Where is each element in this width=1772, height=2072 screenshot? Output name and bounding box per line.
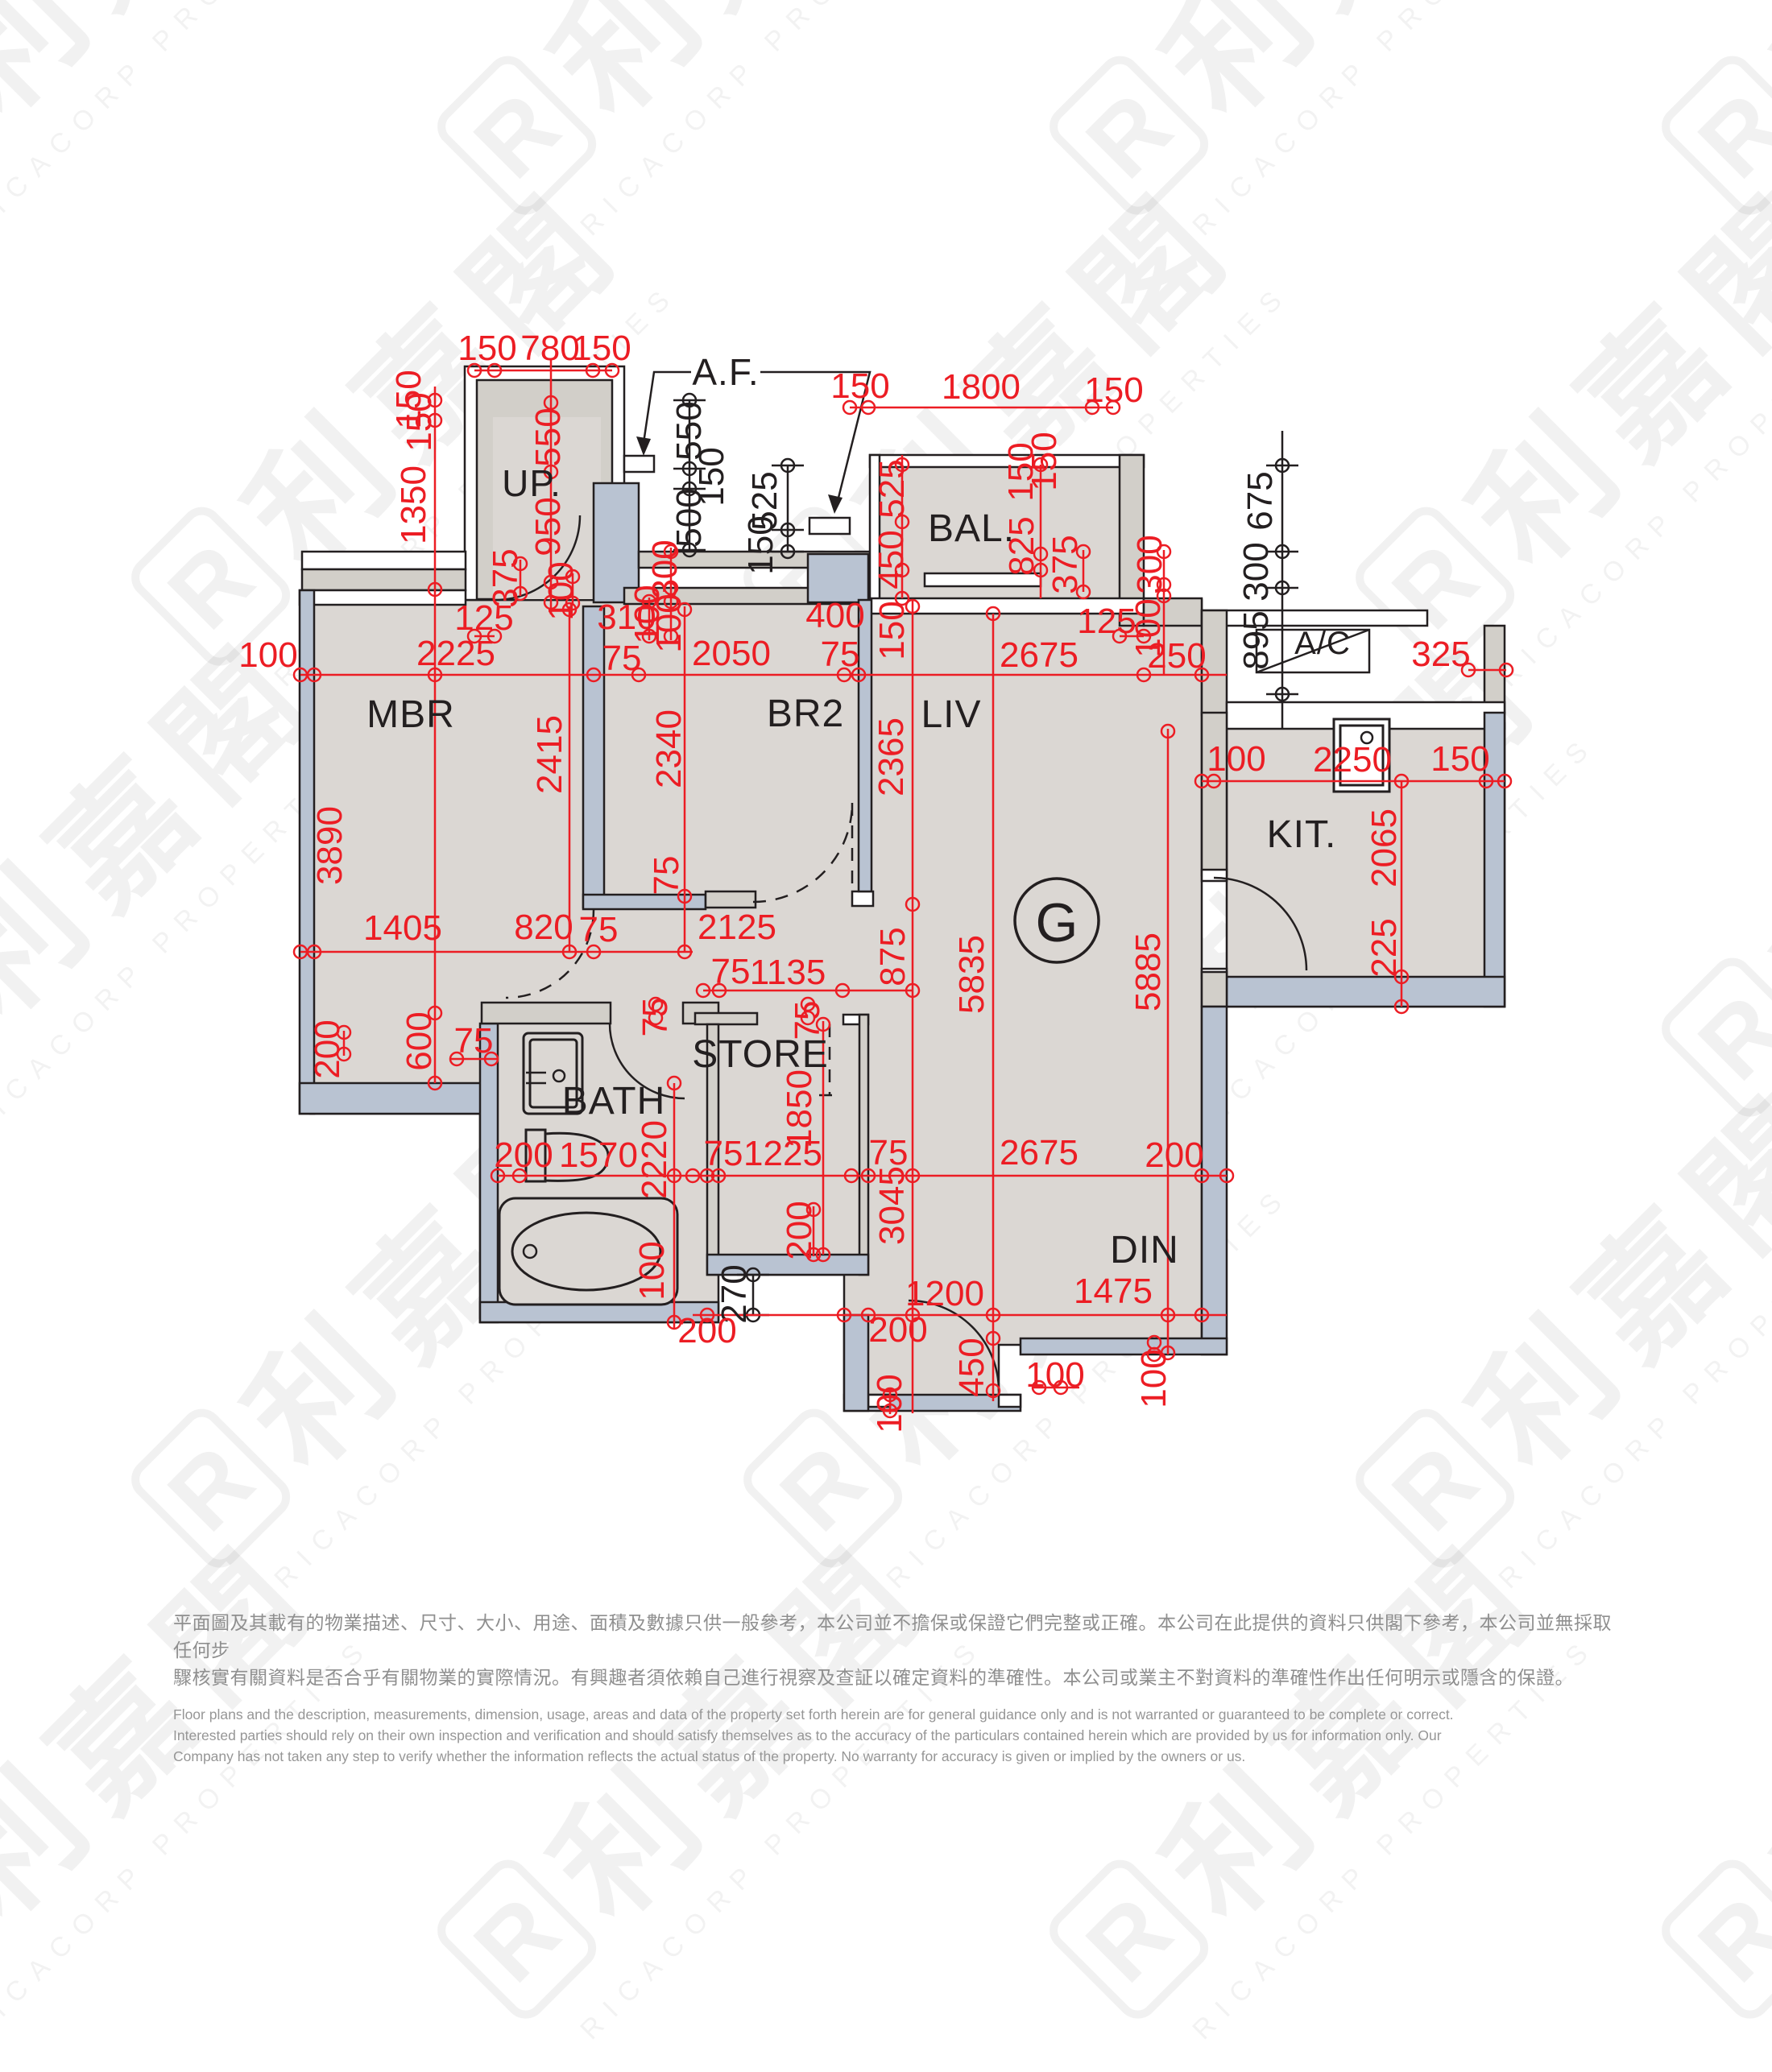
dimension-label: 375 <box>1048 535 1083 593</box>
dimension-label: 450 <box>874 530 909 589</box>
dimension-label: 75 <box>821 637 860 672</box>
disclaimer-zh-line1: 平面圖及其載有的物業描述、尺寸、大小、用途、面積及數據只供一般參考，本公司並不擔… <box>173 1609 1615 1664</box>
dimension-label: 400 <box>805 598 864 634</box>
dimension-label: 150 <box>457 331 516 366</box>
dimension-label: 2050 <box>692 636 771 672</box>
dimension-label: 300 <box>1239 542 1274 601</box>
room-label-kit: KIT. <box>1267 816 1337 854</box>
dimension-label: 150 <box>875 601 910 660</box>
dimension-label: 150 <box>743 515 779 574</box>
dimension-label: 75 <box>638 998 673 1037</box>
room-label-liv: LIV <box>921 696 981 734</box>
dimension-label: 100 <box>872 1374 908 1433</box>
disclaimer: 平面圖及其載有的物業描述、尺寸、大小、用途、面積及數據只供一般參考，本公司並不擔… <box>173 1609 1615 1767</box>
ricacorp-logo-icon: R <box>1041 1851 1216 2027</box>
dimension-label: 2250 <box>1313 742 1392 778</box>
dimension-label: 1475 <box>1074 1274 1153 1309</box>
dimension-label: 1405 <box>363 911 442 946</box>
dimension-label: 525 <box>875 459 910 518</box>
dimension-label: 200 <box>310 1019 346 1078</box>
dimension-label: 100 <box>238 638 297 673</box>
dimension-label: 150 <box>1430 742 1489 777</box>
dimension-label: 895 <box>1239 610 1274 669</box>
dimension-label: 125 <box>454 601 513 636</box>
dimension-label: 100 <box>652 593 687 652</box>
ricacorp-logo-icon: R <box>1653 1851 1772 2027</box>
dimension-label: 75 <box>579 912 619 948</box>
dimension-label: 1225 <box>743 1136 822 1172</box>
dimension-label: 250 <box>1147 639 1206 674</box>
dimension-label: 3045 <box>875 1166 910 1245</box>
dimension-label: 1570 <box>559 1138 638 1173</box>
dimension-label: 1350 <box>396 465 432 544</box>
room-label-af: A.F. <box>692 354 759 391</box>
dimension-label: 150 <box>572 331 631 366</box>
dimension-label: 325 <box>1411 637 1470 672</box>
dimension-label: 150 <box>830 369 889 404</box>
dimension-label: 5885 <box>1131 933 1166 1011</box>
disclaimer-en-line2: Interested parties should rely on their … <box>173 1725 1615 1746</box>
room-label-bath: BATH <box>562 1082 665 1121</box>
dimension-label: 780 <box>520 331 579 366</box>
dimension-label: 150 <box>1027 432 1062 490</box>
dimension-label: 150 <box>402 392 437 451</box>
floorplan-page: { "watermark": { "logo": "R", "cjk": "利嘉… <box>0 0 1772 1772</box>
dimension-label: 75 <box>704 1136 743 1172</box>
dimension-label: 200 <box>494 1138 553 1173</box>
disclaimer-zh-line2: 驟核實有關資料是否合乎有關物業的實際情況。有興趣者須依賴自己進行視察及查証以確定… <box>173 1664 1615 1691</box>
dimension-label: 2340 <box>652 709 687 788</box>
dimension-label: 225 <box>1367 918 1402 977</box>
dimension-label: 200 <box>677 1313 736 1349</box>
room-label-store: STORE <box>692 1036 828 1074</box>
disclaimer-en-line3: Company has not taken any step to verify… <box>173 1746 1615 1767</box>
dimension-label: 100 <box>1207 742 1265 777</box>
dimension-label: 1800 <box>942 370 1021 405</box>
plan-labels-layer: G 15078015015015013505509503751001252225… <box>0 0 1772 1772</box>
dimension-label: 5835 <box>954 935 990 1014</box>
dimension-label: 3890 <box>313 806 348 885</box>
dimension-label: 550 <box>531 407 566 466</box>
dimension-label: 100 <box>1136 1349 1172 1408</box>
dimension-label: 100 <box>544 561 579 620</box>
dimension-label: 125 <box>1077 604 1136 639</box>
dimension-label: 2415 <box>532 715 568 794</box>
dimension-label: 600 <box>402 1011 437 1070</box>
dimension-label: 2675 <box>1000 638 1079 673</box>
dimension-label: 450 <box>954 1338 990 1396</box>
dimension-label: 100 <box>635 1241 670 1300</box>
dimension-label: 75 <box>649 856 685 895</box>
dimension-label: 2125 <box>698 910 776 945</box>
dimension-label: 300 <box>1132 535 1168 593</box>
dimension-label: 500 <box>672 488 707 547</box>
dimension-label: 75 <box>454 1024 494 1059</box>
dimension-label: 200 <box>782 1201 818 1259</box>
dimension-label: 2225 <box>416 636 495 672</box>
dimension-label: 820 <box>514 910 573 945</box>
dimension-label: 200 <box>868 1313 927 1348</box>
dimension-label: 950 <box>531 497 566 556</box>
dimension-label: 2220 <box>637 1120 673 1199</box>
room-label-br2: BR2 <box>767 695 844 734</box>
dimension-label: 150 <box>1084 373 1143 408</box>
ricacorp-logo-icon: R <box>429 1851 604 2027</box>
dimension-label: 75 <box>602 641 642 676</box>
dimension-label: 300 <box>648 540 683 598</box>
dimension-label: 875 <box>876 927 911 986</box>
unit-mark-label: G <box>1036 891 1079 954</box>
dimension-label: 200 <box>1145 1138 1203 1173</box>
dimension-label: 2675 <box>1000 1135 1079 1171</box>
disclaimer-en-line1: Floor plans and the description, measure… <box>173 1704 1615 1725</box>
room-label-mbr: MBR <box>366 696 455 734</box>
dimension-label: 2065 <box>1367 809 1402 887</box>
dimension-label: 675 <box>1243 471 1278 530</box>
dimension-label: 2365 <box>874 718 909 796</box>
room-label-ac: A/C <box>1294 627 1351 660</box>
dimension-label: 1135 <box>750 955 826 991</box>
room-label-up: UP. <box>502 465 561 502</box>
room-label-bal: BAL. <box>928 510 1015 548</box>
dimension-label: 100 <box>1025 1358 1084 1393</box>
dimension-label: 75 <box>711 954 751 990</box>
dimension-label: 1200 <box>905 1276 984 1312</box>
room-label-din: DIN <box>1110 1231 1179 1270</box>
